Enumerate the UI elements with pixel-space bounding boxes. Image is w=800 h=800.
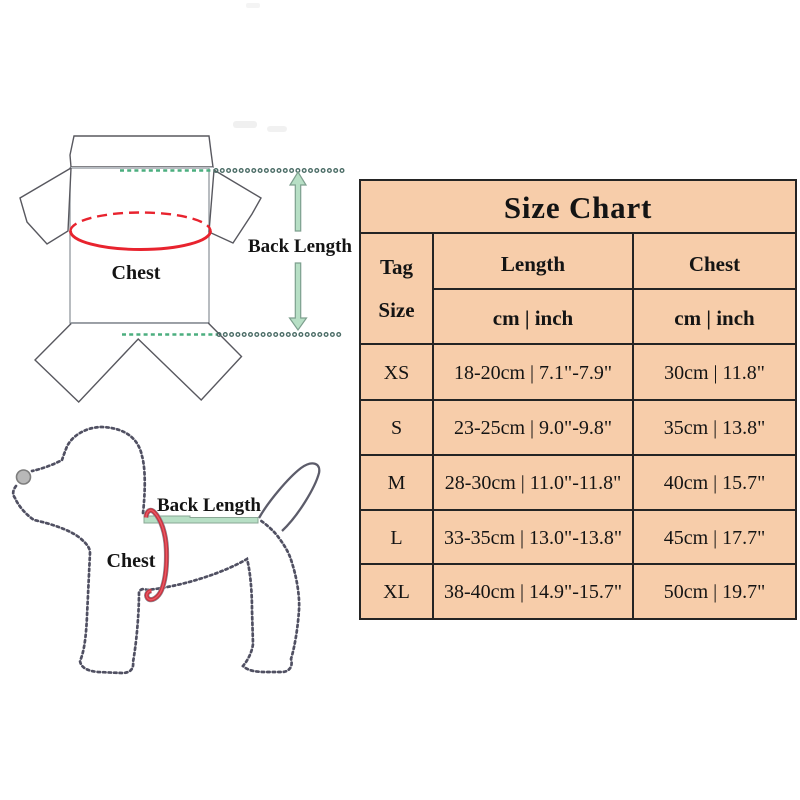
svg-text:Back Length: Back Length — [157, 495, 261, 516]
svg-text:Chest: Chest — [112, 262, 161, 284]
svg-text:Chest: Chest — [107, 550, 156, 572]
svg-text:Back Length: Back Length — [248, 236, 352, 257]
